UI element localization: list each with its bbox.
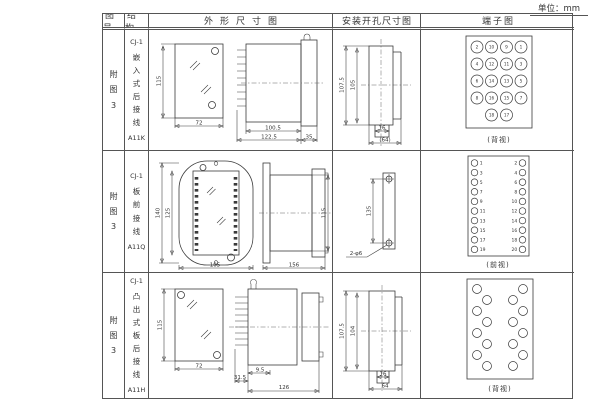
dim-label: 35 xyxy=(306,135,313,141)
row1-model: CJ-1 xyxy=(130,38,143,46)
row2-model: CJ-1 xyxy=(130,172,143,180)
svg-text:18: 18 xyxy=(511,238,517,244)
row3-terminal-cell: (背视) xyxy=(421,273,574,398)
svg-text:12: 12 xyxy=(489,62,495,67)
dim-label: 105 xyxy=(210,263,221,269)
row1-structure-type: 嵌入式后接线 xyxy=(132,51,141,130)
svg-text:3: 3 xyxy=(520,62,523,67)
terminal-staggered xyxy=(473,285,528,371)
dim-label: 107.5 xyxy=(340,77,346,93)
row3-terminal-drawing: (背视) xyxy=(421,273,573,397)
svg-text:6: 6 xyxy=(514,180,517,186)
view-label: (背视) xyxy=(487,135,510,144)
row3-install-drawing: 107.5 104 16 64 xyxy=(333,273,420,397)
row3-model: CJ-1 xyxy=(130,277,143,285)
dim-label: 122.5 xyxy=(261,135,277,141)
svg-text:15: 15 xyxy=(480,228,486,234)
svg-text:7: 7 xyxy=(480,190,483,196)
svg-text:16: 16 xyxy=(489,96,495,101)
svg-text:19: 19 xyxy=(480,247,486,253)
row3-outline-drawing: 115 72 9.5 31.5 126 xyxy=(149,273,332,397)
side-view: 9.5 31.5 126 xyxy=(229,279,329,393)
svg-text:15: 15 xyxy=(504,96,510,101)
dim-label: 107.5 xyxy=(340,323,346,339)
row1-install-drawing: 107.5 105 16 (64) xyxy=(333,30,420,150)
row2-terminal-cell: 1357911131517192468101214161820 (前视) xyxy=(421,151,574,273)
front-view: 140 125 105 xyxy=(156,161,254,270)
row1-terminal-cell: 210914121136141358161571817 (背视) xyxy=(421,30,574,151)
svg-text:10: 10 xyxy=(489,45,495,50)
svg-text:20: 20 xyxy=(511,247,517,253)
dim-label: 115 xyxy=(158,319,164,330)
spec-table: 图号 结构 外形尺寸图 安装开孔尺寸图 端子图 附图3 CJ-1 嵌入式后接线 … xyxy=(102,13,573,399)
svg-text:11: 11 xyxy=(504,62,510,67)
dim-label: 126 xyxy=(279,385,290,391)
svg-text:9: 9 xyxy=(480,199,483,205)
terminal-grid: 210914121136141358161571817 xyxy=(471,41,527,121)
svg-text:6: 6 xyxy=(476,79,479,84)
svg-text:18: 18 xyxy=(489,113,495,118)
dim-label: 9.5 xyxy=(256,368,265,374)
row3-figure-no: 附图3 xyxy=(103,273,125,398)
row1-figure-no: 附图3 xyxy=(103,30,125,151)
svg-text:13: 13 xyxy=(504,79,510,84)
row3-structure-type: 凸出式板后接线 xyxy=(132,290,141,382)
svg-text:16: 16 xyxy=(511,228,517,234)
svg-text:4: 4 xyxy=(514,170,517,176)
row2-structure-type: 板前接线 xyxy=(132,185,141,238)
row1-install-cell: 107.5 105 16 (64) xyxy=(333,30,421,151)
row2-outline-cell: 140 125 105 156 115 xyxy=(149,151,333,273)
dim-label: 105 xyxy=(351,79,357,90)
dim-label: 72 xyxy=(196,121,203,127)
dim-label: 64 xyxy=(382,384,389,390)
svg-text:11: 11 xyxy=(480,209,486,215)
dim-label: 135 xyxy=(367,205,373,216)
svg-text:17: 17 xyxy=(480,238,486,244)
row3-structure: CJ-1 凸出式板后接线 A11H xyxy=(125,273,149,398)
svg-text:1: 1 xyxy=(480,161,483,167)
svg-text:12: 12 xyxy=(511,209,517,215)
col-header-terminal: 端子图 xyxy=(421,14,574,30)
col-header-outline-dims: 外形尺寸图 xyxy=(149,14,333,30)
dim-label: 140 xyxy=(156,207,162,218)
svg-text:8: 8 xyxy=(476,96,479,101)
dim-label: 31.5 xyxy=(234,375,247,381)
side-view: 156 115 xyxy=(259,163,331,270)
svg-text:14: 14 xyxy=(511,218,517,224)
dim-label: (64) xyxy=(379,138,390,144)
dim-label: 125 xyxy=(166,207,172,218)
col-header-figure-no: 图号 xyxy=(103,14,125,30)
svg-text:5: 5 xyxy=(480,180,483,186)
row2-install-cell: 135 2-φ6 xyxy=(333,151,421,273)
svg-text:4: 4 xyxy=(476,62,479,67)
svg-text:8: 8 xyxy=(514,190,517,196)
hole-callout: 2-φ6 xyxy=(350,251,363,257)
svg-text:10: 10 xyxy=(511,199,517,205)
row1-structure: CJ-1 嵌入式后接线 A11K xyxy=(125,30,149,151)
row1-code: A11K xyxy=(128,134,145,142)
row3-outline-cell: 115 72 9.5 31.5 126 xyxy=(149,273,333,398)
row2-install-drawing: 135 2-φ6 xyxy=(333,151,420,272)
manual-page: 单位：mm 图号 结构 外形尺寸图 安装开孔尺寸图 端子图 附图3 CJ-1 嵌… xyxy=(0,0,600,400)
front-view: 115 72 xyxy=(158,289,224,371)
dim-label: 16 xyxy=(379,126,386,132)
row2-terminal-drawing: 1357911131517192468101214161820 (前视) xyxy=(421,151,573,272)
side-view: 100.5 122.5 35 xyxy=(237,34,325,144)
dim-label: 100.5 xyxy=(265,126,281,132)
row3-code: A11H xyxy=(128,386,146,394)
svg-text:5: 5 xyxy=(520,79,523,84)
dim-label: 156 xyxy=(289,263,300,269)
svg-text:17: 17 xyxy=(504,113,510,118)
dim-label: 115 xyxy=(157,75,163,86)
row3-install-cell: 107.5 104 16 64 xyxy=(333,273,421,398)
row2-outline-drawing: 140 125 105 156 115 xyxy=(149,151,332,272)
svg-text:3: 3 xyxy=(480,170,483,176)
svg-text:2: 2 xyxy=(514,161,517,167)
view-label: (前视) xyxy=(486,260,509,269)
svg-text:2: 2 xyxy=(476,45,479,50)
svg-text:14: 14 xyxy=(489,79,495,84)
svg-text:7: 7 xyxy=(520,96,523,101)
row2-figure-no: 附图3 xyxy=(103,151,125,273)
view-label: (背视) xyxy=(488,384,511,393)
svg-text:1: 1 xyxy=(520,45,523,50)
svg-text:13: 13 xyxy=(480,218,486,224)
dim-label: 72 xyxy=(196,364,203,370)
dim-label: 16 xyxy=(380,372,387,378)
col-header-structure: 结构 xyxy=(125,14,149,30)
row1-outline-cell: 115 72 100.5 122.5 35 xyxy=(149,30,333,151)
dim-label: 115 xyxy=(322,207,328,218)
row2-structure: CJ-1 板前接线 A11Q xyxy=(125,151,149,273)
terminal-columns: 1357911131517192468101214161820 xyxy=(471,160,526,253)
dim-label: 104 xyxy=(351,325,357,336)
row1-terminal-drawing: 210914121136141358161571817 (背视) xyxy=(421,30,573,150)
row2-code: A11Q xyxy=(128,243,146,251)
col-header-install-dims: 安装开孔尺寸图 xyxy=(333,14,421,30)
row1-outline-drawing: 115 72 100.5 122.5 35 xyxy=(149,30,332,150)
svg-text:9: 9 xyxy=(505,45,508,50)
front-view: 115 72 xyxy=(157,44,224,128)
